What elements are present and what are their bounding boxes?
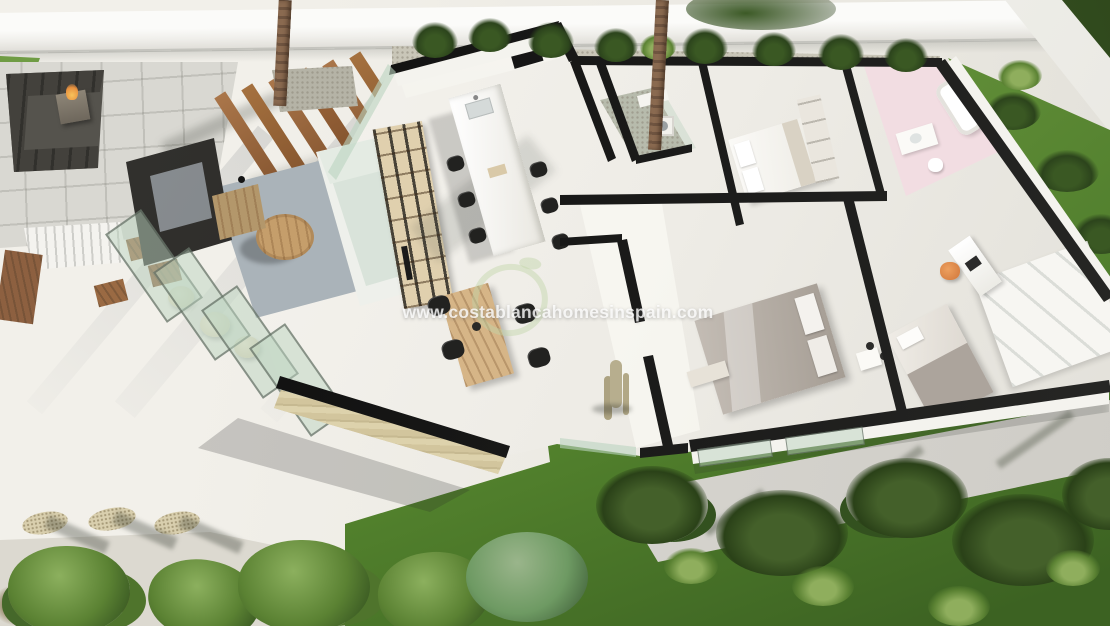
toilet: [928, 158, 943, 172]
garden-bush-blue: [466, 532, 588, 622]
grass-tuft: [884, 38, 928, 72]
bed-pillow: [807, 335, 837, 377]
bed-duvet-fold: [724, 303, 761, 412]
desk-chair-orange: [940, 262, 960, 280]
grass-tuft: [412, 22, 458, 58]
bed-pillow: [896, 326, 924, 350]
ornamental-grass: [716, 490, 848, 576]
cactus-plant: [610, 360, 622, 408]
grass-tuft: [818, 34, 864, 70]
grass-tuft-light: [998, 60, 1042, 90]
grass-tuft-light: [792, 566, 854, 606]
nightstand-lamp: [866, 342, 874, 350]
floorplan-3d-render: www.costablancahomesinspain.com: [0, 0, 1110, 626]
ornamental-grass: [596, 466, 708, 544]
laptop: [965, 255, 982, 271]
grass-tuft: [528, 22, 574, 58]
grass-tuft-light: [664, 548, 718, 584]
ornamental-grass: [846, 458, 968, 538]
island-tray: [487, 164, 507, 179]
bed-pillow: [734, 140, 756, 168]
bed-pillow: [794, 293, 824, 335]
table-lamp: [238, 176, 245, 183]
bed-pillow: [742, 167, 764, 195]
grass-tuft-light: [1046, 550, 1100, 586]
grass-tuft: [752, 32, 796, 66]
grass-tuft-light: [928, 586, 990, 626]
watermark-url: www.costablancahomesinspain.com: [398, 302, 718, 323]
grass-tuft: [594, 28, 638, 62]
island-sink: [465, 97, 494, 120]
grass-tuft: [468, 18, 512, 52]
garden-bush: [238, 540, 370, 626]
vanity-basin: [909, 132, 923, 145]
grass-tuft: [682, 28, 728, 64]
cactus-shadow: [592, 404, 632, 414]
